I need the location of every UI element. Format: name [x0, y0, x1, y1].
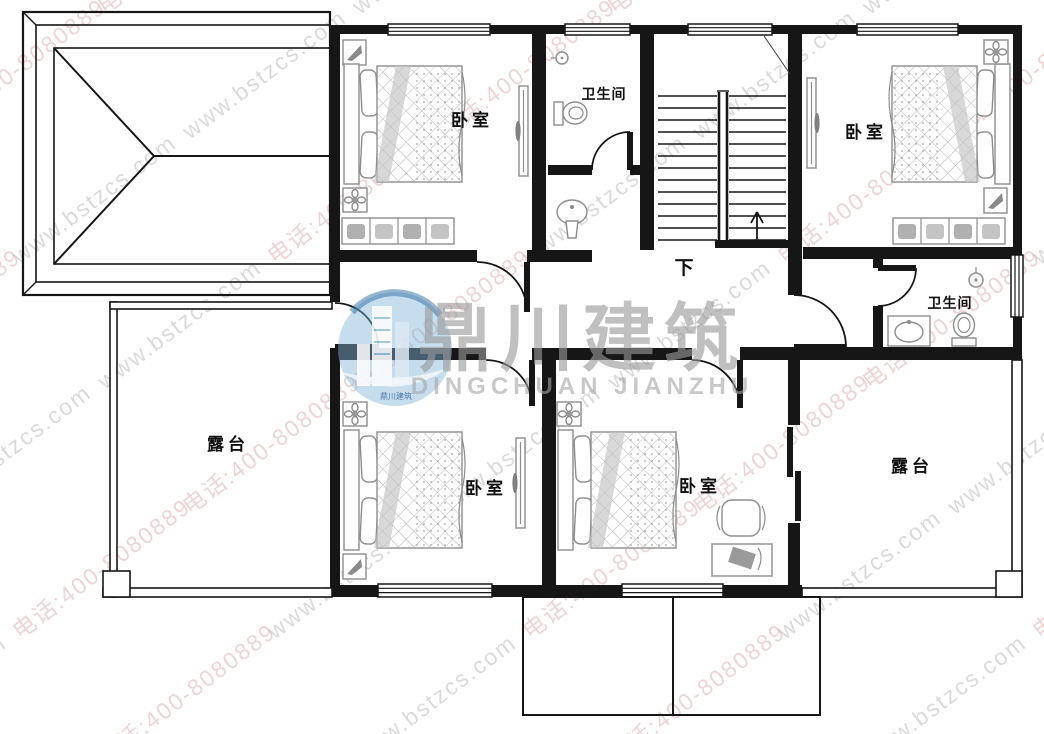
wall-bedroom4-east-upper	[788, 360, 800, 425]
logo-name-cn: 鼎川建筑	[418, 297, 746, 380]
parapet-left-north	[110, 302, 332, 309]
parapet-right-east	[1012, 360, 1022, 588]
logo-name-en: DINGCHUAN JIANZHU	[411, 373, 753, 400]
bedroom-bottom-middle-label: 卧室	[679, 476, 721, 496]
bedroom-top-left: 卧室	[342, 40, 528, 244]
watermark-text: 电话:400-8080889	[92, 618, 280, 734]
terrace-left-label: 露台	[207, 434, 249, 454]
watermark-text: www.bstzcs.com	[857, 629, 1032, 734]
watermark-text: 电话:400-8080889	[1027, 493, 1044, 644]
logo-badge-text: 鼎川建筑	[380, 391, 412, 401]
watermark-text: 电话:400-8080889	[92, 0, 280, 19]
window	[378, 584, 492, 597]
bedroom-top-left-label: 卧室	[451, 110, 493, 130]
window	[565, 24, 630, 35]
wall-bath2-left-lower	[873, 306, 883, 350]
door-bathroom-right	[878, 265, 916, 306]
watermark-text: www.bstzcs.com	[7, 129, 182, 270]
parapet-left-post	[103, 571, 130, 597]
watermark-text: 电话:400-8080889	[602, 0, 790, 19]
window	[688, 24, 772, 35]
window	[857, 24, 958, 35]
stair-landing-edge	[715, 240, 788, 248]
window	[1011, 255, 1023, 317]
wall-left-lower	[330, 348, 340, 597]
parapet-right-post	[996, 571, 1022, 597]
wall-stairs-bedroom2	[788, 34, 802, 247]
wall-bath-internal	[548, 165, 592, 175]
terrace-right-label: 露台	[891, 456, 933, 476]
wall-corridor-north-b	[527, 250, 592, 262]
wall-bottom-b	[492, 585, 622, 597]
wall-bedroom1-bath	[532, 34, 546, 250]
watermark-text: www.bstzcs.com	[347, 0, 522, 20]
parapet-left-west	[110, 302, 117, 597]
watermark-text: www.bstzcs.com	[857, 0, 1032, 20]
watermark-text: 电话:400-8080889	[0, 0, 110, 144]
wall-bottom-a	[330, 585, 378, 597]
watermark-text: www.bstzcs.com	[942, 379, 1044, 520]
watermark-text: 电话:400-8080889	[7, 493, 195, 644]
wall-bedroom4-east-lower	[788, 523, 800, 585]
wall-corridor-north-a	[330, 250, 477, 262]
logo-watermark: 鼎川建筑 鼎川建筑 DINGCHUAN JIANZHU	[338, 292, 753, 406]
watermark-text: www.bstzcs.com	[0, 629, 11, 734]
window	[622, 584, 723, 597]
parapet-right-south	[802, 588, 1022, 597]
watermark-text: www.bstzcs.com	[347, 629, 522, 734]
wall-bedroom2-bottom	[803, 247, 1013, 259]
stair-down-label: 下	[674, 258, 693, 279]
bathroom-top-label: 卫生间	[582, 86, 627, 102]
watermark-text: www.bstzcs.com	[0, 379, 96, 520]
bedroom-bottom-left-label: 卧室	[465, 478, 507, 498]
watermark-text: 电话:400-8080889	[602, 618, 790, 734]
door-bathroom-top	[592, 132, 633, 170]
wall-bath-stairs	[640, 34, 654, 250]
watermark-text: www.bstzcs.com	[0, 0, 11, 20]
window	[388, 24, 490, 35]
floor-plan: www.bstzcs.com电话:400-8080889www.bstzcs.c…	[0, 0, 1044, 734]
watermark-text: 电话:400-8080889	[0, 243, 25, 394]
wall-hall-east	[788, 247, 802, 295]
door-hall-vestibule	[794, 295, 846, 350]
parapet-left-south	[103, 588, 332, 597]
bedroom-top-right-label: 卧室	[845, 122, 887, 142]
wall-bottom-c	[723, 585, 802, 597]
bathroom-right-label: 卫生间	[928, 295, 973, 311]
